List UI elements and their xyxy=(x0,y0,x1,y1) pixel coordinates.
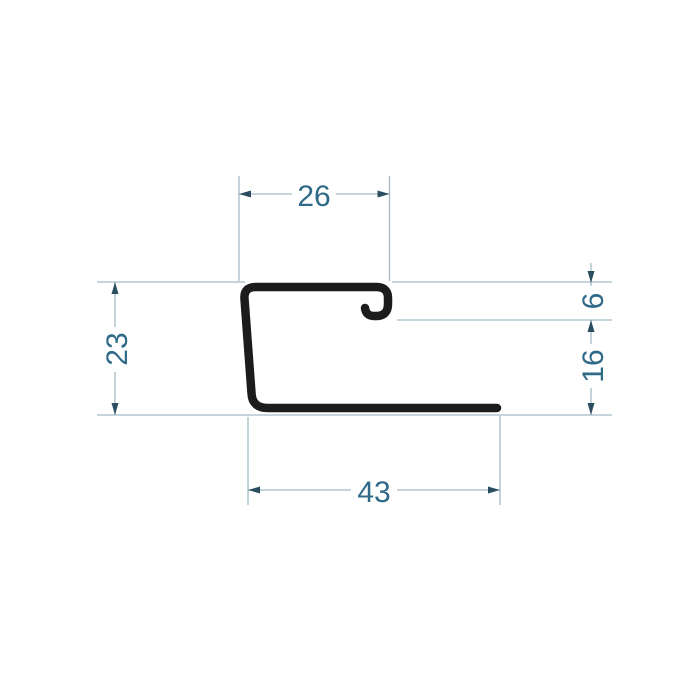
dim-arrowhead-left-icon xyxy=(248,487,260,494)
dim-arrowhead-up-icon xyxy=(112,282,119,294)
dimension-label-top-width: 26 xyxy=(297,180,330,213)
dim-arrowhead-down-icon xyxy=(112,403,119,415)
dimension-labels-layer: 26 23 6 16 43 xyxy=(101,180,610,509)
dimension-label-bottom-width: 43 xyxy=(357,476,390,509)
dim-arrowhead-right-icon xyxy=(378,191,390,198)
dimension-label-hook-height: 6 xyxy=(577,293,610,310)
dimension-label-left-height: 23 xyxy=(101,332,134,365)
dimension-lines-layer xyxy=(97,176,612,505)
dim-arrowhead-down-icon xyxy=(588,271,595,283)
dim-arrowhead-right-icon xyxy=(488,487,500,494)
drawing-canvas: 26 23 6 16 43 xyxy=(0,0,700,700)
dim-arrowhead-left-icon xyxy=(239,191,251,198)
profile-technical-drawing: 26 23 6 16 43 xyxy=(0,0,700,700)
dim-arrowhead-up-icon xyxy=(588,320,595,332)
profile-outline xyxy=(244,287,497,408)
dimension-label-lower-right-height: 16 xyxy=(577,349,610,382)
dim-arrowhead-down-icon xyxy=(588,403,595,415)
arrowheads-layer xyxy=(112,191,595,494)
